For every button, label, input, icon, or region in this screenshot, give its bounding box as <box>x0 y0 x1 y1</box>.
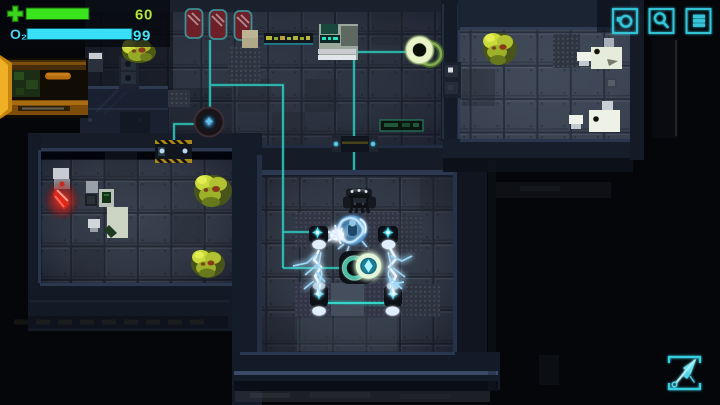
svg-text:O₂: O₂ <box>10 26 27 42</box>
svg-text:99: 99 <box>133 28 151 45</box>
svg-text:60: 60 <box>135 7 153 24</box>
